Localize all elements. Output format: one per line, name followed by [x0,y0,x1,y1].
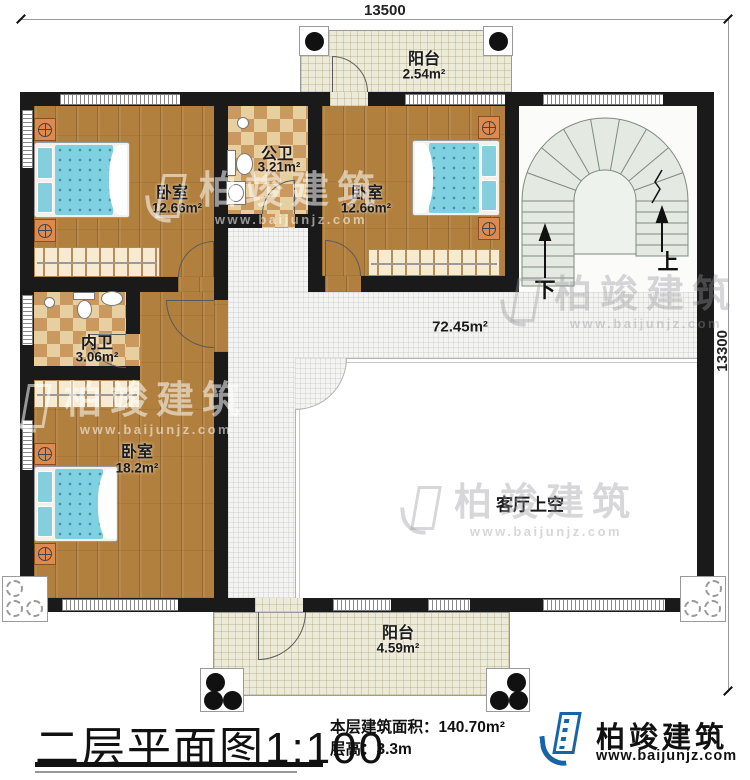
balcony-bottom-area: 4.59m² [377,641,420,656]
bedroom2-area: 12.66m² [341,201,391,216]
shower-head-icon [237,117,249,129]
column-icon [509,691,528,710]
window [428,599,470,611]
wardrobe [34,247,160,277]
right-dimension-label: 13300 [714,330,731,372]
window [543,94,663,105]
column-icon [204,691,223,710]
column-icon [490,691,509,710]
bed [34,466,118,542]
nightstand [34,443,56,465]
balcony-bottom-door-opening [255,598,303,612]
ornament-circle-icon [705,580,722,597]
ornament-circle-icon [704,600,721,617]
bedroom3-door-opening [214,300,228,352]
toilet-bowl [236,153,253,175]
sink-basin [228,184,244,202]
window [543,599,665,611]
stairs-down-label: 下 [535,274,556,304]
title-underline-secondary [35,771,297,773]
toilet-tank [227,150,236,176]
column-icon [223,691,242,710]
window [405,94,505,105]
wardrobe [368,249,500,276]
ornament-circle-icon [6,600,23,617]
toilet-bowl [77,300,92,319]
floor-plan: 13500 13300 阳台 2.54m² [0,0,750,780]
bed [34,142,130,218]
corner-ornament [680,576,726,622]
shower-head-icon [44,297,55,308]
corridor-floor [228,228,308,292]
living-void-name: 客厅上空 [496,491,564,516]
balcony-bottom-name: 阳台 [382,619,414,643]
top-dimension-label: 13500 [364,2,406,19]
balcony-column-base [200,668,244,712]
column-icon [489,32,508,51]
living-void-inner-line [299,362,697,598]
sink-basin [101,291,123,306]
bedroom3-name: 卧室 [121,438,153,462]
column-icon [206,673,225,692]
nightstand [478,217,500,240]
public-bath-area: 3.21m² [258,160,301,175]
bedroom3-area: 18.2m² [116,461,159,476]
ensuite-area: 3.06m² [76,350,119,365]
brand-logo-icon [540,711,592,769]
ornament-circle-icon [6,580,23,597]
balcony-top-door-opening [330,92,368,106]
nightstand [34,219,56,242]
nightstand [34,118,56,141]
window [22,420,33,470]
ensuite-door-opening [126,334,140,366]
column-icon [507,673,526,692]
balcony-column-base [486,668,530,712]
nightstand [34,543,56,565]
hall-area: 72.45m² [432,319,488,336]
bedroom1-name: 卧室 [156,179,188,203]
corner-ornament [2,576,48,622]
nightstand [478,116,500,139]
title-underline [35,762,323,767]
bedroom2-door-opening [325,276,361,292]
bedroom1-door-opening [178,277,214,292]
window [22,110,33,168]
window [60,94,180,105]
column-icon [305,32,324,51]
balcony-column-base [483,26,513,56]
bedroom2-name: 卧室 [351,179,383,203]
bed [412,140,500,216]
floor-height-text: 层高：3.3m [330,739,505,761]
wardrobe [34,380,140,408]
public-bath-door-opening [262,214,295,228]
balcony-column-base [299,26,329,56]
window [62,599,178,611]
living-void [295,358,697,598]
balcony-top-area: 2.54m² [403,67,446,82]
balcony-top-name: 阳台 [408,45,440,69]
ornament-circle-icon [684,600,701,617]
top-dimension-line [20,19,728,20]
window [333,599,391,611]
bedroom1-area: 12.66m² [152,201,202,216]
ornament-circle-icon [26,600,43,617]
brand-url: www.baijunjz.com [596,748,737,764]
toilet-tank [73,292,95,300]
window [22,295,33,345]
stairs-up-label: 上 [658,246,679,276]
floor-area-text: 本层建筑面积：140.70m² [330,717,505,739]
floor-info: 本层建筑面积：140.70m² 层高：3.3m [330,717,505,761]
